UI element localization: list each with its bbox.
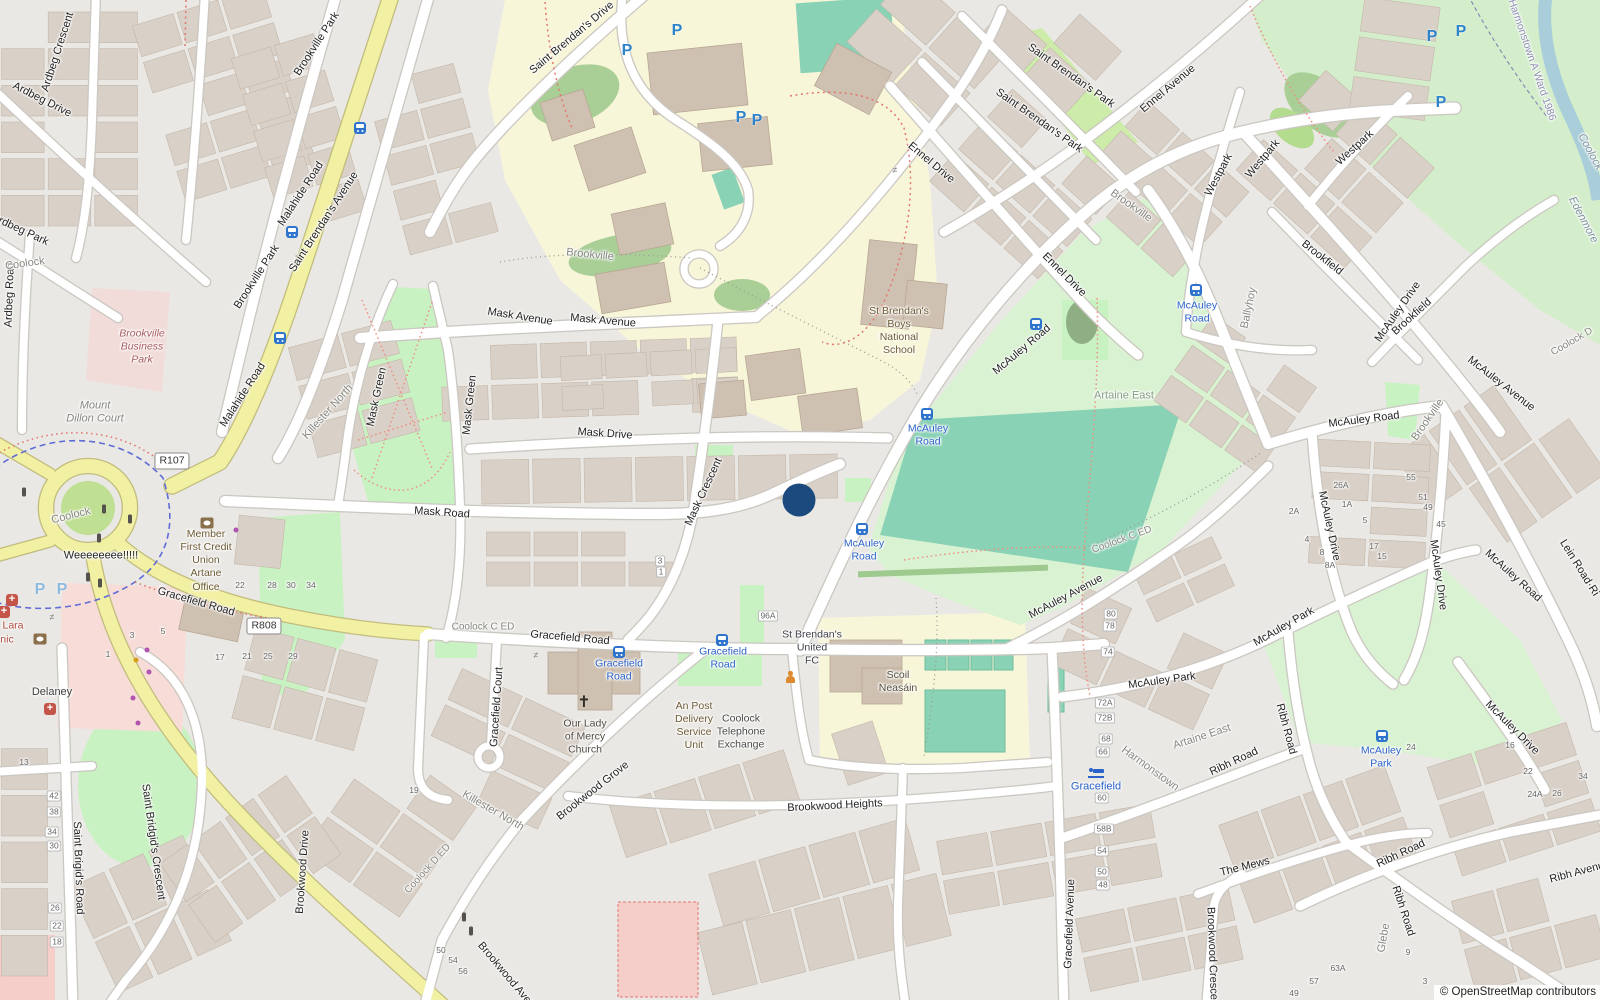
location-marker[interactable] (783, 484, 816, 517)
map-attribution: © OpenStreetMap contributors (1434, 985, 1600, 1000)
map-canvas[interactable]: Ardbeg CrescentArdbeg DriveArdbeg ParkAr… (0, 0, 1600, 1000)
